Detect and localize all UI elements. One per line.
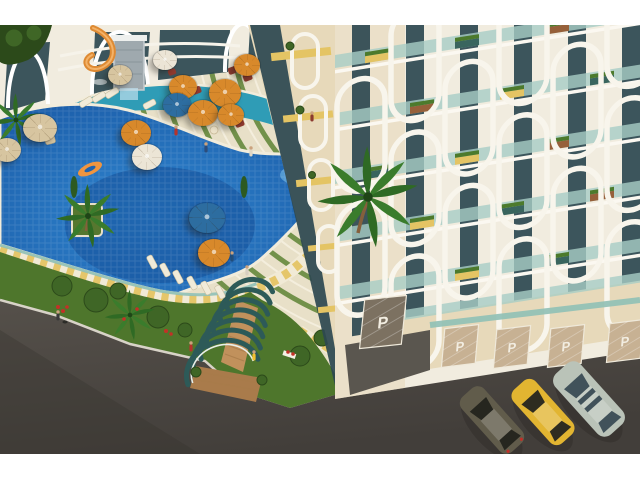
scene-render: P P P P [0, 25, 640, 454]
scene: P P P P [0, 25, 640, 454]
svg-text:P: P [507, 339, 517, 355]
stage: P P P P [0, 0, 640, 480]
garage-door: P [493, 326, 530, 369]
garage-door: P [547, 325, 584, 368]
garage-door: P [606, 320, 640, 363]
svg-text:P: P [620, 333, 630, 349]
garage-door: P [441, 325, 478, 368]
garage-door: P [360, 295, 407, 348]
svg-text:P: P [455, 338, 465, 354]
svg-text:P: P [561, 338, 571, 354]
